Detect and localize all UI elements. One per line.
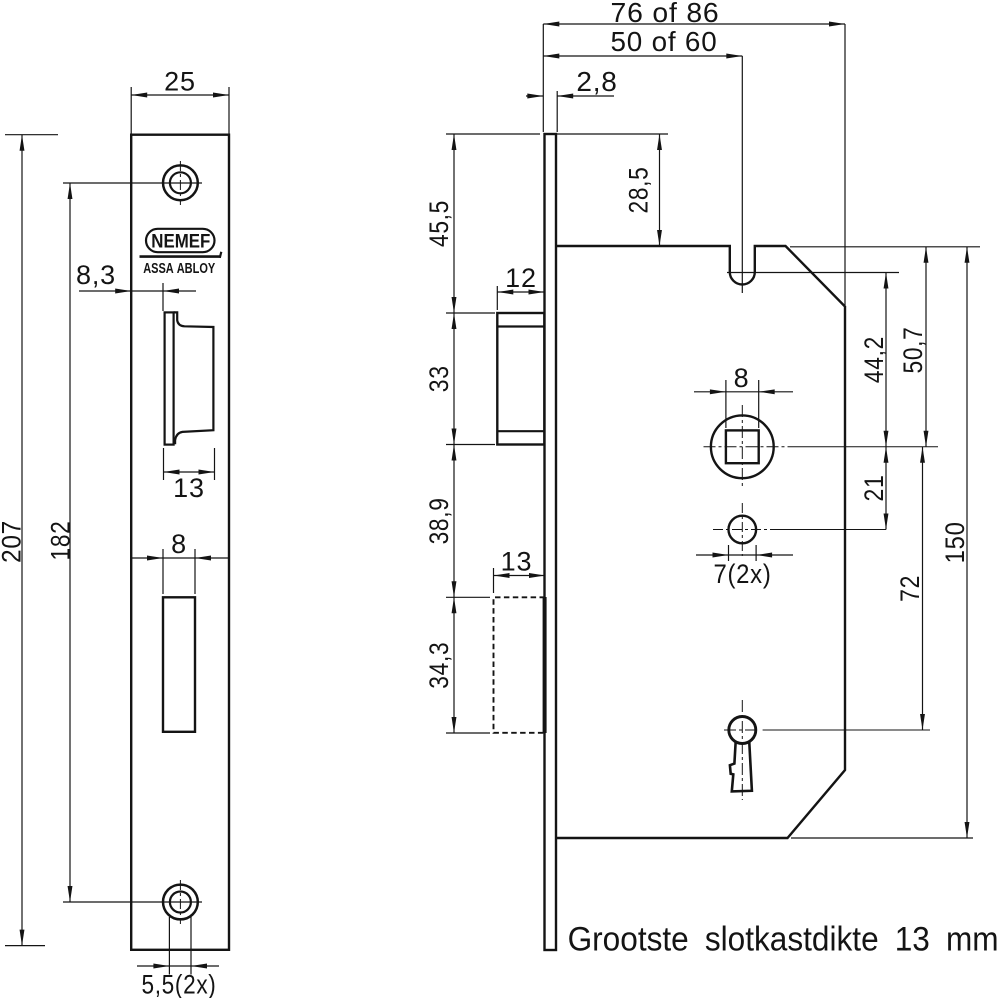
svg-text:21: 21 [859, 475, 889, 502]
svg-text:44,2: 44,2 [859, 336, 889, 383]
svg-text:25: 25 [164, 67, 196, 97]
svg-text:12: 12 [505, 263, 537, 293]
svg-text:8,3: 8,3 [76, 260, 116, 290]
svg-text:33: 33 [424, 365, 454, 392]
svg-text:76 of 86: 76 of 86 [611, 0, 720, 28]
svg-text:150: 150 [940, 521, 970, 563]
svg-text:ASSA ABLOY: ASSA ABLOY [143, 260, 215, 277]
svg-text:Grootste slotkastdikte 13 mm: Grootste slotkastdikte 13 mm [568, 921, 999, 959]
svg-text:8: 8 [171, 529, 187, 559]
svg-text:NEMEF: NEMEF [151, 231, 210, 253]
svg-text:28,5: 28,5 [624, 167, 654, 214]
svg-text:207: 207 [0, 520, 26, 563]
svg-text:8: 8 [734, 363, 750, 393]
svg-text:7(2x): 7(2x) [714, 559, 772, 589]
svg-text:13: 13 [501, 547, 533, 577]
svg-text:72: 72 [895, 575, 925, 602]
svg-text:34,3: 34,3 [424, 642, 454, 689]
svg-text:50,7: 50,7 [898, 327, 928, 374]
svg-text:38,9: 38,9 [424, 497, 454, 544]
svg-text:182: 182 [46, 521, 76, 561]
svg-text:5,5(2x): 5,5(2x) [142, 970, 217, 998]
svg-text:13: 13 [173, 473, 205, 503]
svg-text:2,8: 2,8 [576, 66, 617, 97]
svg-text:50 of 60: 50 of 60 [611, 26, 718, 57]
svg-text:45,5: 45,5 [424, 200, 454, 247]
